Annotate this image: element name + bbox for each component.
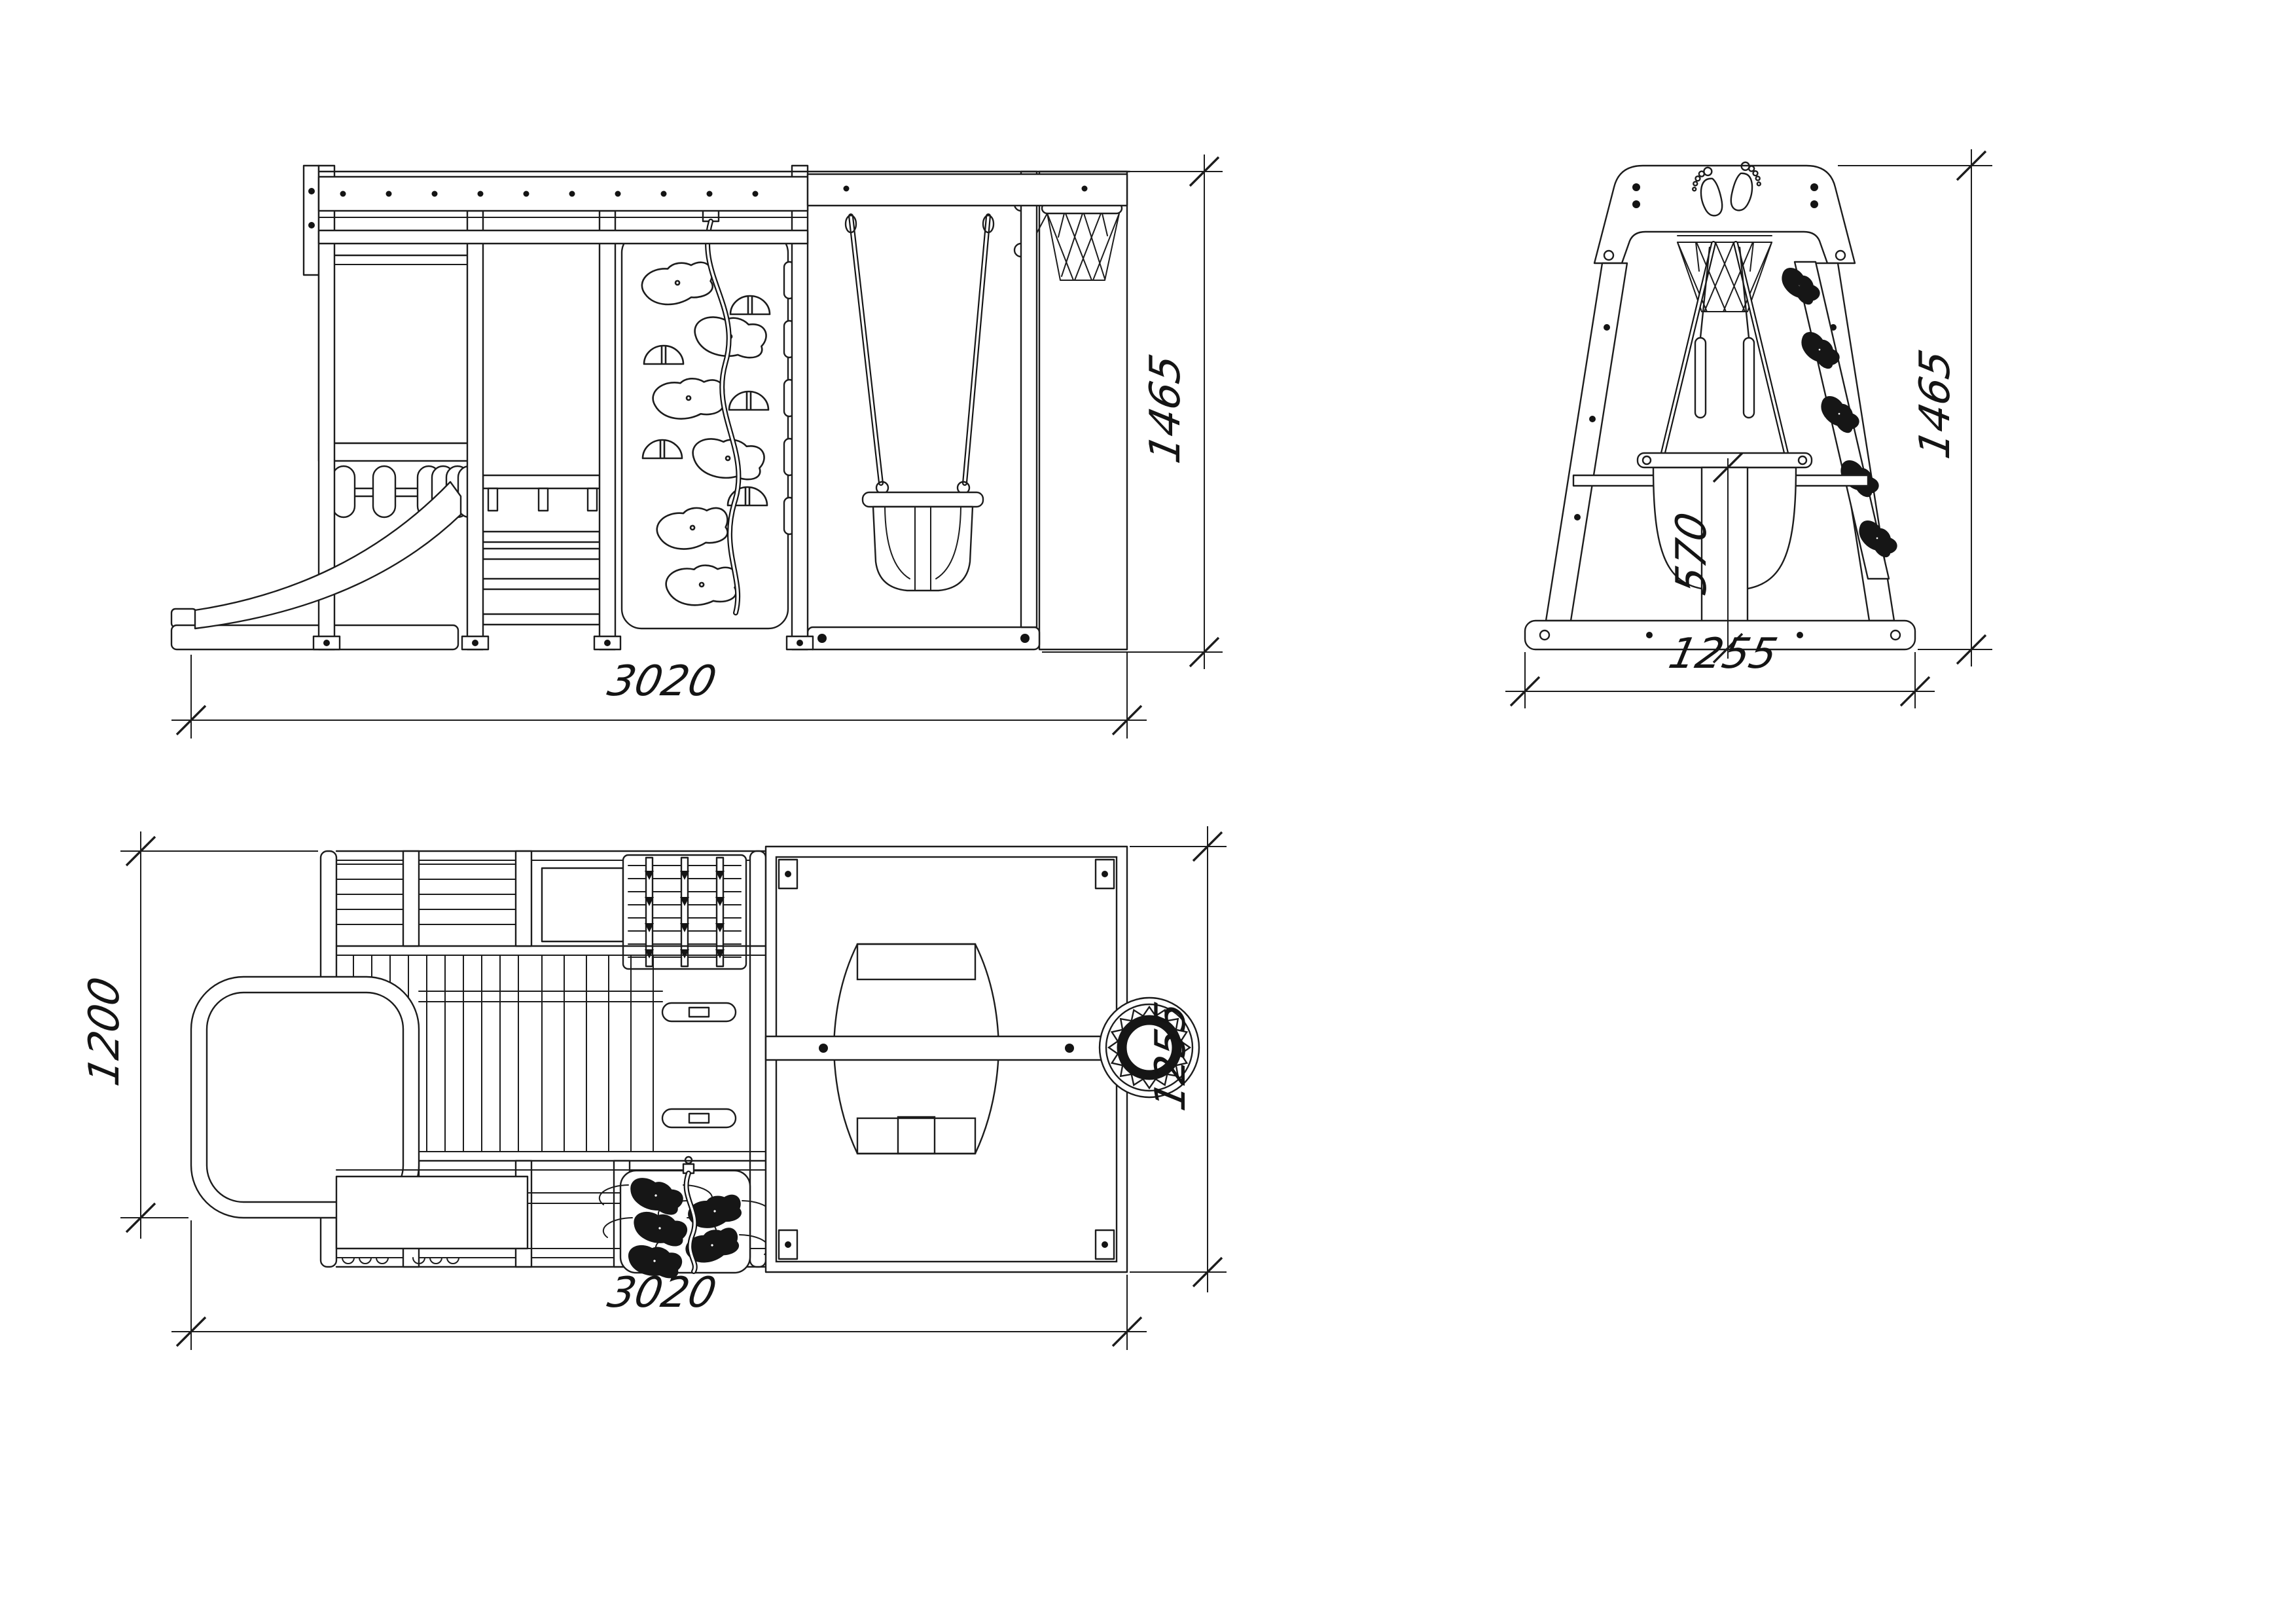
swing-ropes [1662, 244, 1787, 456]
dim-label-front-height: 1465 [1141, 350, 1190, 467]
swing-beam [808, 174, 1127, 206]
bead-bumps [342, 1258, 459, 1264]
rope-net [623, 855, 746, 969]
swing-seat [863, 492, 983, 591]
side-view: 570 1255 1465 [1505, 149, 1992, 708]
swing-beam-plan [766, 1036, 1127, 1060]
ladder [483, 475, 600, 625]
swing [846, 215, 994, 591]
mid-rail [319, 230, 808, 244]
front-view: 3020 1465 [171, 155, 1223, 739]
table-board [1638, 453, 1812, 467]
swing-base-beam [808, 627, 1039, 649]
dim-label-front-width: 3020 [603, 657, 721, 706]
dim-label-plan-depth: 1200 [81, 973, 129, 1090]
a-frame-head [1594, 166, 1855, 263]
playhouse-panel [319, 255, 476, 461]
basketball-net-icon [1677, 236, 1772, 312]
plan-view: 1200 1255 3020 [81, 826, 1227, 1350]
playground-technical-drawing: 3020 1465 [0, 0, 2296, 1623]
dimension-front-width: 3020 [171, 652, 1147, 739]
dim-label-side-height: 1465 [1911, 346, 1960, 463]
dim-label-plan-side: 1255 [1147, 998, 1195, 1115]
climbing-wall [622, 206, 795, 629]
hatch-panel [542, 868, 623, 941]
dim-label-plan-width: 3020 [603, 1269, 721, 1317]
drawing-sheet: 3020 1465 [0, 0, 2296, 1623]
front-wall-panel [336, 1176, 528, 1249]
left-leg [1546, 263, 1627, 621]
dim-label-side-width: 1255 [1664, 630, 1782, 678]
bridge-slats [336, 864, 524, 924]
swing-bay-plan [766, 847, 1127, 1272]
dim-label-side-inner: 570 [1668, 509, 1716, 599]
climbing-wall-plan [600, 1157, 771, 1281]
